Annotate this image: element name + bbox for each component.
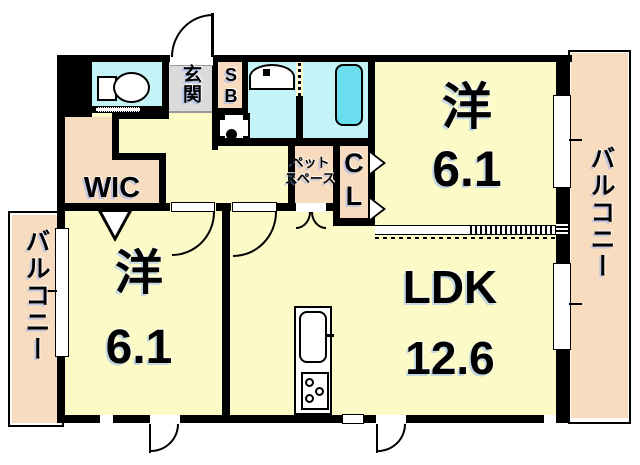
wall-bottom <box>556 415 570 423</box>
toilet-door-dashed <box>96 107 140 112</box>
wall-wic-step-h <box>112 153 166 160</box>
window <box>55 228 69 357</box>
pipe-space-block <box>58 55 92 117</box>
bathtub-icon <box>335 64 363 126</box>
wall-right <box>556 350 568 415</box>
pet-space-label: ペット スペース <box>264 155 356 187</box>
wall-hall-bottom <box>216 203 231 211</box>
window-tick <box>569 139 582 141</box>
wall-room-divider <box>222 211 230 415</box>
closet-door-triangle-inner <box>370 199 383 219</box>
partition-hatch-right <box>556 223 568 236</box>
burner-icon <box>305 394 314 403</box>
window-tick <box>569 303 582 305</box>
washbasin-icon <box>249 64 295 90</box>
wall-top-right <box>213 55 572 62</box>
window-gap <box>342 414 364 424</box>
pet-space-label-line2: スペース <box>264 171 356 187</box>
washbasin-faucet-icon <box>263 69 270 76</box>
wall-hall-notch-top <box>112 113 169 119</box>
bedroom-bottom-label: 洋 <box>79 246 199 302</box>
wall-hall-bottom <box>326 203 340 211</box>
door-slab <box>232 202 277 212</box>
burner-icon <box>305 378 314 387</box>
wall-sb-left <box>212 55 218 150</box>
kitchen-sink-icon <box>299 311 327 363</box>
wall-hall-bottom <box>58 203 170 211</box>
ldk-size: 12.6 <box>375 332 525 384</box>
wall-right <box>556 55 568 95</box>
entrance-door-leaf <box>211 13 214 57</box>
window-gap <box>100 415 113 423</box>
wall-bottom <box>62 415 100 423</box>
door-arc <box>151 424 179 452</box>
wall-toilet-entrance <box>162 55 169 113</box>
pan-corner <box>220 115 225 120</box>
wall-bottom <box>406 415 544 423</box>
window <box>553 263 571 350</box>
ldk-label: LDK <box>375 261 525 313</box>
toilet-bowl-icon <box>113 72 150 103</box>
folding-door-gap <box>296 203 326 212</box>
wall-bottom <box>180 415 342 423</box>
wall-hall-bottom <box>277 203 296 211</box>
pan-corner <box>243 115 248 120</box>
window-gap <box>544 415 556 423</box>
balcony-right-label: バルコニー <box>587 145 615 345</box>
wall-wet-bottom <box>212 138 375 146</box>
shoebox-label: SB <box>220 65 241 109</box>
entrance-door-arc <box>171 14 213 57</box>
wall-sb-right <box>242 62 248 114</box>
bedroom-top-label: 洋 <box>407 78 527 136</box>
sliding-partition-hatch <box>470 226 556 234</box>
pet-space-label-line1: ペット <box>264 155 356 171</box>
window <box>553 95 571 188</box>
wall-bottom <box>113 415 150 423</box>
balcony-left-label: バルコニー <box>22 228 50 420</box>
bath-door-dashed <box>298 62 301 96</box>
burner-icon <box>315 387 324 396</box>
wic-door-triangle-inner <box>102 212 128 236</box>
floor-plan: 洋 6.1 洋 6.1 LDK 12.6 WIC 玄関 SB CL ペット スペ… <box>0 0 640 465</box>
entrance-label: 玄関 <box>179 64 201 110</box>
entrance-step-line <box>169 111 212 113</box>
bedroom-bottom-size: 6.1 <box>79 320 199 376</box>
wall-wash-bath-divider <box>296 96 303 138</box>
door-arc <box>378 424 406 452</box>
bedroom-top-size: 6.1 <box>407 140 527 198</box>
closet-door-triangle-inner <box>370 153 383 173</box>
ceiling-dashed-line <box>375 237 556 239</box>
door-slab <box>171 202 215 212</box>
kitchen-faucet-icon <box>325 334 334 337</box>
wall-bottom <box>364 415 376 423</box>
wic-label: WIC <box>62 172 162 204</box>
